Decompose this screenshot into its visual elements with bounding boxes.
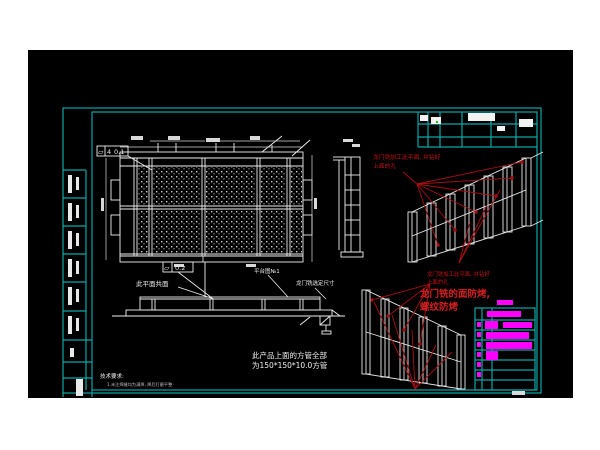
red-mill-note-top-line1: 龙门铣加工此平面, 并钻好 <box>373 153 441 161</box>
cad-screenshot: ▱ 4 0.1 ▱ 0.2 <box>0 0 600 450</box>
tolerance-value: 0.2 <box>175 264 185 272</box>
scale-text-block <box>512 391 525 395</box>
cad-drawing-svg: ▱ 4 0.1 ▱ 0.2 <box>0 0 600 450</box>
red-mill-note-top-line2: 上面的孔 <box>373 162 396 170</box>
coplanar-note: 此平面共面 <box>136 279 169 288</box>
tolerance-count: 4 <box>107 148 111 156</box>
tech-req-title: 技术要求: <box>100 372 124 380</box>
red-mill-note-mid-line1: 龙门铣加工此平面, 并钻好 <box>427 270 490 278</box>
tube-note-line1: 此产品上面的方管全部 <box>252 350 327 360</box>
platform-note: 平台图№1 <box>254 267 280 275</box>
green-marker-dot <box>436 121 438 123</box>
tech-req-line: 1.未注焊缝均为满焊, 焊后打磨平整 <box>107 381 173 388</box>
tube-note-line2: 为150*150*10.0方管 <box>252 360 328 370</box>
gantry-dim-note: 龙门铣选定尺寸 <box>296 279 335 287</box>
red-paint-note-line1: 龙门铣的面防烤, <box>419 288 490 300</box>
red-mill-note-mid-line2: 上面的孔 <box>427 278 449 286</box>
tolerance-value: 0.1 <box>114 148 124 156</box>
tolerance-symbol: ▱ <box>98 148 104 156</box>
tolerance-symbol: ▱ <box>164 264 170 272</box>
red-paint-note-line2: 螺纹防烤 <box>420 301 459 313</box>
